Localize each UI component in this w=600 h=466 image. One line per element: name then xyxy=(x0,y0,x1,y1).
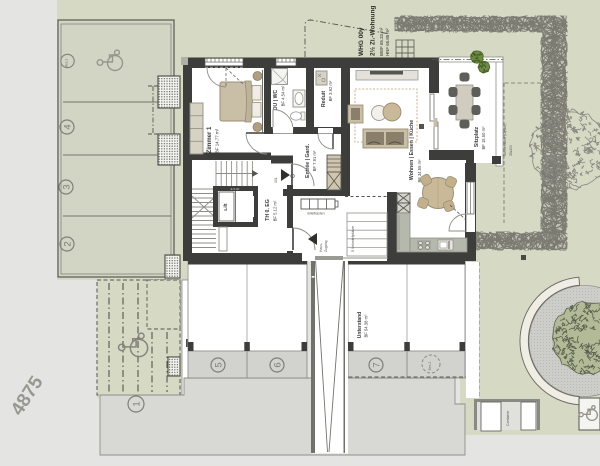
svg-text:4: 4 xyxy=(62,124,73,129)
svg-text:TH 0. EG: TH 0. EG xyxy=(265,199,271,221)
svg-text:BF 14.77 m²: BF 14.77 m² xyxy=(215,128,220,153)
svg-text:3: 3 xyxy=(61,184,72,189)
svg-text:Reduit: Reduit xyxy=(321,91,327,107)
svg-text:5 Velostellplätze: 5 Velostellplätze xyxy=(351,226,355,252)
svg-text:Wohnen | Essen | Küche: Wohnen | Essen | Küche xyxy=(409,120,415,180)
svg-text:WHG 00y: WHG 00y xyxy=(358,27,365,56)
svg-text:HNF 65.85 m²: HNF 65.85 m² xyxy=(385,28,390,56)
svg-text:Bes.1: Bes.1 xyxy=(65,59,69,67)
svg-text:Bes.2: Bes.2 xyxy=(428,362,432,371)
svg-text:35x200: 35x200 xyxy=(509,145,513,156)
svg-text:BF 4.54 m²: BF 4.54 m² xyxy=(281,85,286,106)
svg-text:001: 001 xyxy=(274,177,278,183)
svg-text:BWF 65.33 m²: BWF 65.33 m² xyxy=(379,27,384,56)
svg-text:Sitzplatz: Sitzplatz xyxy=(474,126,480,147)
svg-text:Unterstand: Unterstand xyxy=(357,312,363,338)
svg-text:Lift: Lift xyxy=(223,203,228,211)
svg-text:BF 3.92 m²: BF 3.92 m² xyxy=(328,80,333,101)
svg-text:BF 15.50 m²: BF 15.50 m² xyxy=(481,126,486,150)
svg-text:Container: Container xyxy=(506,410,510,426)
svg-text:2½ Zi.-Wohnung: 2½ Zi.-Wohnung xyxy=(369,6,377,56)
svg-text:DU | WC: DU | WC xyxy=(273,90,279,111)
svg-text:1: 1 xyxy=(131,401,142,406)
svg-text:Zugang: Zugang xyxy=(324,240,328,252)
svg-text:BF 7.91 m²: BF 7.91 m² xyxy=(312,150,317,171)
svg-text:Zimmer 1: Zimmer 1 xyxy=(207,126,213,153)
svg-text:Haus-: Haus- xyxy=(319,243,323,252)
svg-text:6: 6 xyxy=(272,362,283,367)
svg-text:5: 5 xyxy=(213,362,224,367)
svg-text:7: 7 xyxy=(371,362,382,367)
svg-text:Sonnenstore (Option): Sonnenstore (Option) xyxy=(503,124,507,156)
svg-text:BF 54.38 m²: BF 54.38 m² xyxy=(364,314,369,338)
svg-text:BF 5.12 m²: BF 5.12 m² xyxy=(273,200,278,221)
svg-text:Briefkasten: Briefkasten xyxy=(308,212,325,216)
svg-text:E 0.00: E 0.00 xyxy=(231,187,240,191)
svg-text:2: 2 xyxy=(62,241,73,246)
